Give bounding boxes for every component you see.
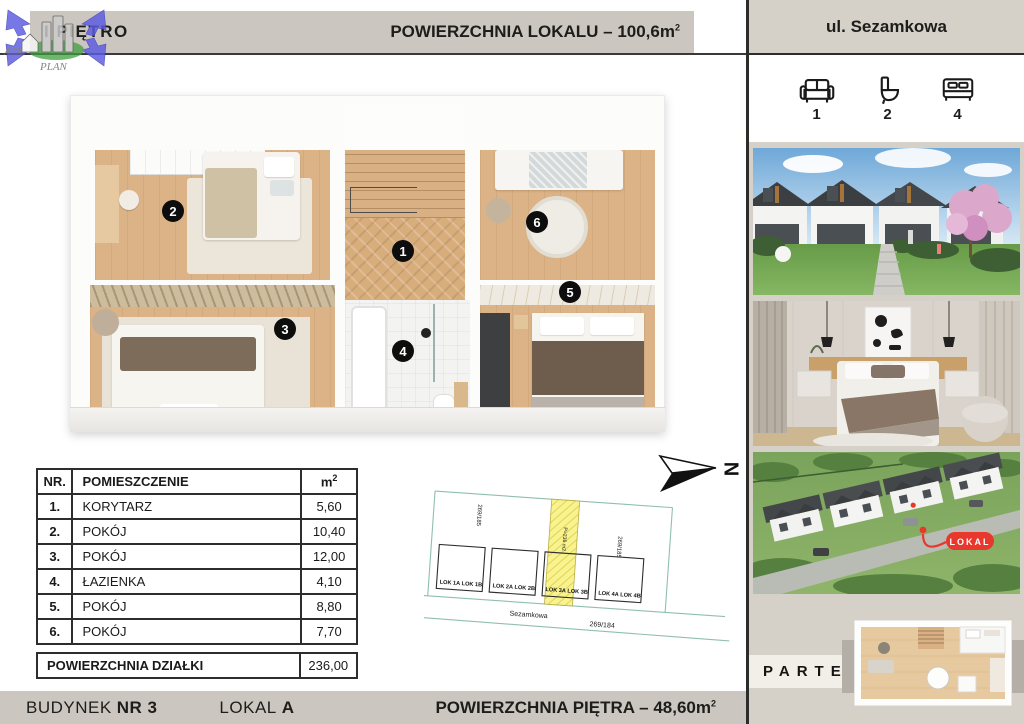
desk bbox=[95, 165, 119, 243]
shower-glass bbox=[433, 304, 435, 382]
pouf bbox=[92, 309, 119, 336]
parter-plan-thumb bbox=[854, 620, 1012, 706]
parcel-number: 269/184 bbox=[589, 621, 615, 630]
room-number-badge: 2 bbox=[162, 200, 184, 222]
room-area-table: NR. POMIESZCZENIE m2 1. KORYTARZ 5,60 2.… bbox=[36, 468, 358, 679]
north-label: N bbox=[720, 462, 742, 476]
logo-text-ata: ATA bbox=[3, 46, 23, 58]
table-row: 2. POKÓJ 10,40 bbox=[37, 519, 357, 544]
room-6-bedroom bbox=[480, 150, 655, 280]
table-row: 5. POKÓJ 8,80 bbox=[37, 594, 357, 619]
shower-head bbox=[421, 328, 431, 338]
right-sidebar: ul. Sezamkowa 1 bbox=[746, 0, 1024, 724]
building-label: LOK 2A bbox=[492, 583, 513, 590]
building-label: LOK 1A bbox=[439, 580, 460, 587]
agency-logo-watermark: ATA PLAN bbox=[0, 4, 112, 76]
bottom-info-bar: BUDYNEKNR 3 LOKALA POWIERZCHNIA PIĘTRA –… bbox=[0, 691, 746, 724]
site-plan-map: N P=236 m2 LOK 1A LOK 1B LOK 2A bbox=[424, 446, 746, 680]
terrace bbox=[1011, 640, 1024, 693]
pouf bbox=[486, 198, 511, 223]
bed bbox=[203, 152, 300, 240]
plot-area-row: POWIERZCHNIA DZIAŁKI 236,00 bbox=[36, 652, 358, 679]
street-name: Sezamkowa bbox=[509, 611, 548, 621]
room-2-bedroom bbox=[95, 150, 330, 280]
staircase bbox=[345, 150, 465, 218]
room-number-badge: 6 bbox=[526, 211, 548, 233]
plot-area-label: POWIERZCHNIA DZIAŁKI bbox=[37, 653, 300, 678]
top-header-bar: I PIĘTRO POWIERZCHNIA LOKALU – 100,6m2 bbox=[30, 11, 694, 53]
table-row: 1. KORYTARZ 5,60 bbox=[37, 494, 357, 519]
logo-text-plan: PLAN bbox=[39, 61, 68, 73]
aerial-photo: LOKAL bbox=[753, 452, 1020, 594]
exterior-photo bbox=[753, 148, 1020, 295]
building-label: LOK 4B bbox=[620, 592, 641, 599]
col-nr: NR. bbox=[37, 469, 72, 494]
floor-area: POWIERZCHNIA PIĘTRA – 48,60m2 bbox=[435, 698, 716, 718]
bed bbox=[495, 150, 623, 190]
nightstand bbox=[514, 315, 528, 329]
stat-bedrooms: 4 bbox=[939, 75, 977, 123]
stat-bathrooms: 2 bbox=[873, 75, 903, 123]
room-number-badge: 1 bbox=[392, 240, 414, 262]
col-area: m2 bbox=[301, 469, 357, 494]
building-label: LOK 1B bbox=[461, 581, 482, 588]
street-header: ul. Sezamkowa bbox=[749, 0, 1024, 55]
header-divider bbox=[0, 53, 748, 55]
room-number-badge: 4 bbox=[392, 340, 414, 362]
bedroom-photo bbox=[753, 301, 1020, 446]
building-label: LOK 2B bbox=[514, 585, 535, 592]
table-row: 4. ŁAZIENKA 4,10 bbox=[37, 569, 357, 594]
lokal-badge-label: LOKAL bbox=[950, 537, 991, 547]
table-row: 3. POKÓJ 12,00 bbox=[37, 544, 357, 569]
sofa-icon bbox=[797, 75, 837, 105]
bed-icon bbox=[939, 75, 977, 105]
room-number-badge: 3 bbox=[274, 318, 296, 340]
bathtub bbox=[351, 306, 387, 422]
parcel-number: 269/185 bbox=[475, 504, 483, 527]
unit-letter: LOKALA bbox=[219, 698, 294, 718]
floorplan-render: 1 2 3 4 5 6 bbox=[70, 95, 665, 432]
room-number-badge: 5 bbox=[559, 281, 581, 303]
chair bbox=[119, 190, 139, 210]
building-number: BUDYNEKNR 3 bbox=[26, 698, 157, 718]
stat-livingrooms: 1 bbox=[797, 75, 837, 123]
unit-stats-row: 1 2 4 bbox=[749, 55, 1024, 142]
plot-area-value: 236,00 bbox=[300, 653, 357, 678]
north-compass: N bbox=[660, 456, 742, 492]
building-label: LOK 4A bbox=[598, 591, 619, 598]
table-header-row: NR. POMIESZCZENIE m2 bbox=[37, 469, 357, 494]
toilet-icon bbox=[873, 75, 903, 105]
parcel-number: 269/185 bbox=[615, 536, 623, 559]
table-row: 6. POKÓJ 7,70 bbox=[37, 619, 357, 644]
unit-area-title: POWIERZCHNIA LOKALU – 100,6m2 bbox=[390, 22, 680, 42]
brochure-page: I PIĘTRO POWIERZCHNIA LOKALU – 100,6m2 A… bbox=[0, 0, 1024, 724]
col-name: POMIESZCZENIE bbox=[72, 469, 301, 494]
patterned-wall bbox=[90, 285, 335, 307]
